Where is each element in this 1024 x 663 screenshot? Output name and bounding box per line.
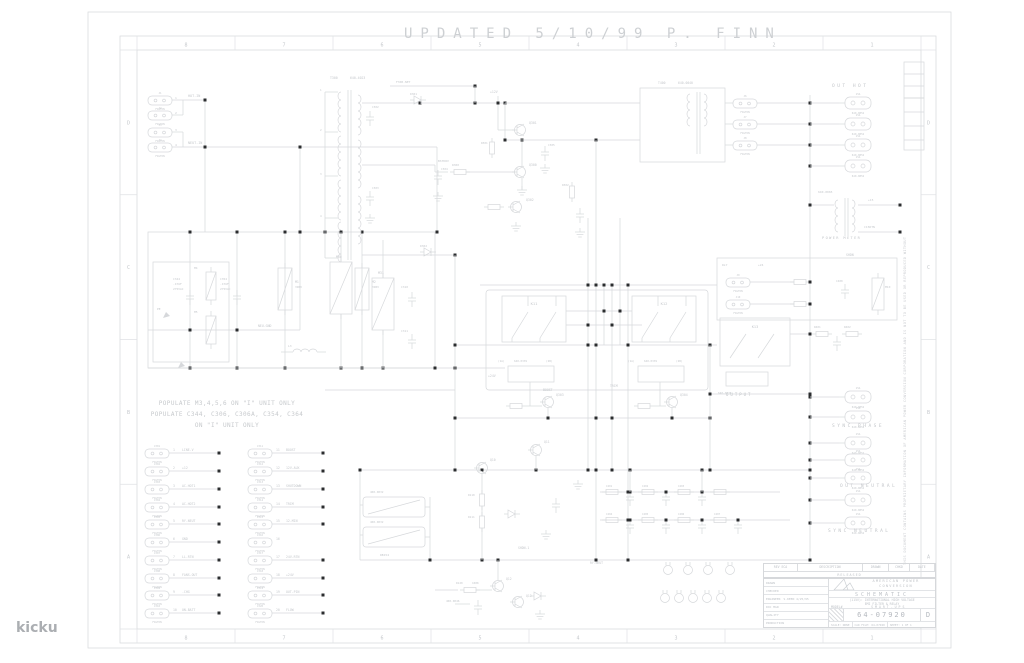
svg-text:+15: +15 [868, 198, 874, 202]
revision-letter: D [920, 609, 935, 621]
svg-text:14: 14 [276, 502, 280, 506]
svg-text:J4: J4 [158, 138, 162, 142]
svg-text:J308: J308 [154, 569, 161, 573]
svg-text:+24V: +24V [286, 573, 294, 577]
svg-text:4: 4 [173, 502, 175, 506]
svg-text:2: 2 [320, 128, 322, 132]
svg-text:4: 4 [175, 143, 177, 147]
svg-text:15A: 15A [856, 113, 861, 117]
svg-text:A: A [927, 555, 930, 561]
svg-text:K11: K11 [531, 301, 539, 306]
svg-text:R401: R401 [814, 325, 821, 329]
svg-text:OUT-PIN: OUT-PIN [286, 590, 300, 594]
svg-text:20: 20 [276, 608, 280, 612]
svg-text:J306: J306 [154, 533, 161, 537]
populate-note-line: POPULATE M3,4,5,6 ON "I" UNIT ONLY [148, 398, 306, 409]
svg-text:16: 16 [276, 537, 280, 541]
svg-text:15A: 15A [856, 449, 861, 453]
svg-text:C: C [927, 265, 930, 271]
svg-text:15A: 15A [856, 386, 861, 390]
svg-text:C310: C310 [401, 285, 408, 289]
label-output: OUTPUT [726, 392, 752, 397]
svg-text:FASTON: FASTON [740, 110, 750, 114]
label-out-hot: OUT HOT [832, 84, 868, 89]
svg-text:400-0032: 400-0032 [370, 520, 384, 524]
svg-text:100K: 100K [472, 581, 479, 585]
revision-table-header: REV ECADESCRIPTIONDRAWNCHKDDATE [764, 564, 935, 572]
svg-text:GND: GND [182, 537, 188, 541]
svg-text:C305: C305 [548, 143, 555, 147]
svg-text:Q300: Q300 [529, 163, 537, 167]
updated-annotation: UPDATED 5/10/99 P. FINN [404, 26, 814, 42]
drawing-description: (115V): INTERNATIONAL HIGH VOLTAGE EMI F… [829, 598, 935, 609]
svg-text:J318: J318 [257, 569, 264, 573]
signoff-row-quality: QUALITY [764, 612, 828, 620]
svg-text:400-0046: 400-0046 [446, 599, 460, 603]
svg-text:15A: 15A [856, 512, 861, 516]
svg-text:8: 8 [184, 636, 187, 642]
svg-text:400-0032: 400-0032 [370, 490, 384, 494]
svg-text:6: 6 [380, 636, 383, 642]
svg-text:390V: 390V [372, 285, 379, 289]
svg-text:SHDN: SHDN [846, 253, 854, 257]
svg-text:R111: R111 [468, 515, 475, 519]
svg-text:J10: J10 [736, 295, 741, 299]
svg-text:3: 3 [175, 128, 177, 132]
svg-text:C304: C304 [441, 167, 448, 171]
svg-text:AC-HOT1: AC-HOT1 [182, 484, 196, 488]
svg-text:J307: J307 [154, 551, 161, 555]
svg-text:Q304: Q304 [680, 393, 688, 397]
company-name: AMERICAN POWER CONVERSION [857, 579, 935, 589]
svg-text:D: D [127, 120, 130, 126]
svg-text:+24: +24 [758, 263, 764, 267]
svg-text:LINE-V: LINE-V [182, 448, 194, 452]
svg-text:640-0040: 640-0040 [678, 81, 693, 85]
signoff-label: ENGINEER [766, 597, 780, 601]
svg-text:T300: T300 [330, 76, 338, 80]
svg-text:C: C [127, 265, 130, 271]
svg-text:K12: K12 [661, 301, 668, 306]
svg-text:A: A [127, 555, 130, 561]
svg-text:3: 3 [320, 172, 322, 176]
svg-text:.47UF: .47UF [173, 282, 182, 286]
svg-text:J317: J317 [257, 551, 264, 555]
revision-header-0: REV ECA [764, 564, 798, 571]
populate-note: POPULATE M3,4,5,6 ON "I" UNIT ONLY POPUL… [148, 398, 306, 431]
svg-text:2: 2 [772, 43, 775, 49]
svg-text:12-MIN: 12-MIN [286, 519, 298, 523]
svg-text:+12V: +12V [490, 90, 498, 94]
svg-text:1: 1 [870, 636, 873, 642]
svg-text:FANS-OUT: FANS-OUT [182, 573, 197, 577]
svg-text:-CHG: -CHG [182, 590, 190, 594]
signoff-row-doc-mgr: DOC MGR [764, 604, 828, 612]
svg-text:Q10: Q10 [490, 458, 496, 462]
svg-text:BOOST: BOOST [543, 388, 553, 392]
svg-text:C311: C311 [401, 329, 408, 333]
svg-text:SHDN-1: SHDN-1 [518, 546, 529, 550]
svg-text:15A: 15A [856, 134, 861, 138]
svg-text:640-0852: 640-0852 [852, 174, 865, 178]
svg-text:J319: J319 [257, 586, 264, 590]
svg-text:2: 2 [175, 111, 177, 115]
svg-text:J6: J6 [743, 94, 747, 98]
svg-text:8: 8 [184, 43, 187, 49]
svg-text:RB154: RB154 [380, 553, 389, 557]
svg-text:640-0065: 640-0065 [818, 190, 833, 194]
revision-header-3: CHKD [889, 564, 909, 571]
svg-text:C404: C404 [606, 512, 613, 516]
svg-text:640-0339: 640-0339 [644, 359, 657, 363]
svg-text:BSTDRV: BSTDRV [438, 159, 449, 163]
svg-text:J320: J320 [257, 604, 264, 608]
svg-text:C401: C401 [606, 484, 613, 488]
svg-text:SHUTDOWN: SHUTDOWN [286, 484, 301, 488]
signoff-row-production: PRODUCTION [764, 620, 828, 627]
svg-text:PE: PE [157, 307, 161, 311]
svg-text:3: 3 [674, 43, 677, 49]
svg-text:FASTON: FASTON [740, 152, 750, 156]
svg-text:F300-NET: F300-NET [396, 80, 411, 84]
svg-text:J2: J2 [158, 106, 162, 110]
svg-text:2: 2 [173, 466, 175, 470]
svg-text:R301: R301 [481, 141, 488, 145]
signoff-label: QUALITY [766, 613, 779, 617]
svg-text:R402: R402 [844, 325, 851, 329]
svg-text:10: 10 [173, 608, 177, 612]
svg-text:15A: 15A [856, 155, 861, 159]
svg-text:D301: D301 [410, 92, 417, 96]
svg-text:3: 3 [674, 636, 677, 642]
signoff-value: S.KEEN 4/25/95 [783, 597, 808, 601]
svg-text:17: 17 [276, 555, 280, 559]
svg-text:4: 4 [576, 636, 579, 642]
label-out-neutral: OUT NEUTRAL [840, 484, 897, 489]
svg-text:7: 7 [282, 43, 285, 49]
svg-text:C407: C407 [714, 512, 721, 516]
svg-text:C402: C402 [642, 484, 649, 488]
svg-text:M10: M10 [885, 285, 891, 289]
svg-text:(1A): (1A) [628, 359, 635, 363]
label-sync-phase: SYNC PHASE [832, 424, 884, 429]
svg-text:4: 4 [576, 43, 579, 49]
svg-text:LL-RTN: LL-RTN [182, 555, 194, 559]
svg-text:.47UF: .47UF [220, 282, 229, 286]
svg-text:C403: C403 [678, 484, 685, 488]
svg-text:Q11: Q11 [544, 440, 550, 444]
svg-text:J302: J302 [154, 462, 161, 466]
svg-text:12V-AUX: 12V-AUX [286, 466, 300, 470]
svg-text:J8: J8 [743, 136, 747, 140]
svg-text:J314: J314 [257, 498, 264, 502]
svg-text:15A: 15A [856, 92, 861, 96]
svg-text:AC-HOT2: AC-HOT2 [182, 502, 196, 506]
svg-text:R300: R300 [452, 163, 459, 167]
signoff-label: CHECKED [766, 589, 779, 593]
svg-text:(1A): (1A) [498, 359, 505, 363]
svg-text:ON-BATT: ON-BATT [182, 608, 196, 612]
svg-text:R110: R110 [468, 493, 475, 497]
svg-text:11: 11 [276, 448, 280, 452]
svg-text:R302: R302 [562, 183, 569, 187]
svg-text:+12: +12 [182, 466, 188, 470]
doc-type: SCHEMATIC [829, 591, 935, 599]
revision-header-4: DATE [910, 564, 935, 571]
svg-text:6: 6 [173, 537, 175, 541]
svg-text:5: 5 [173, 519, 175, 523]
svg-text:K13: K13 [752, 325, 759, 329]
svg-text:3: 3 [173, 484, 175, 488]
svg-text:TRIM: TRIM [286, 502, 294, 506]
populate-note-line: ON "I" UNIT ONLY [148, 420, 306, 431]
svg-text:M5: M5 [194, 310, 198, 314]
svg-text:7: 7 [173, 555, 175, 559]
svg-text:Q302: Q302 [526, 198, 534, 202]
svg-text:C303: C303 [372, 186, 379, 190]
apc-logo [831, 579, 857, 591]
svg-text:FASTON: FASTON [733, 311, 743, 315]
svg-text:C406: C406 [678, 512, 685, 516]
svg-text:390V: 390V [295, 285, 302, 289]
drawing-number: 64-07920 [844, 609, 920, 621]
svg-text:C400: C400 [836, 279, 843, 283]
svg-text:FASTON: FASTON [740, 131, 750, 135]
svg-text:(2B): (2B) [546, 359, 553, 363]
svg-text:6: 6 [380, 43, 383, 49]
svg-text:1: 1 [173, 448, 175, 452]
svg-text:J305: J305 [154, 515, 161, 519]
signoff-column: DRAWNCHECKEDENGINEERS.KEEN 4/25/95DOC MG… [764, 579, 829, 627]
company-line2: CONVERSION [857, 584, 935, 589]
svg-text:B: B [127, 410, 130, 416]
svg-text:J315: J315 [257, 515, 264, 519]
svg-text:FASTON: FASTON [733, 289, 743, 293]
svg-text:RY-NEUT: RY-NEUT [182, 519, 196, 523]
svg-text:J313: J313 [257, 480, 264, 484]
svg-text:J311: J311 [257, 444, 264, 448]
svg-text:D: D [927, 120, 930, 126]
title-block: DRAWNCHECKEDENGINEERS.KEEN 4/25/95DOC MG… [763, 578, 936, 628]
svg-text:8: 8 [173, 573, 175, 577]
svg-text:+24V: +24V [488, 374, 496, 378]
svg-text:2: 2 [772, 636, 775, 642]
svg-text:FASTON: FASTON [255, 620, 265, 624]
svg-text:Q301: Q301 [529, 121, 537, 125]
svg-text:J316: J316 [257, 533, 264, 537]
svg-text:FASTON: FASTON [152, 620, 162, 624]
svg-text:Q303: Q303 [556, 393, 564, 397]
svg-text:C15RTN: C15RTN [864, 225, 875, 229]
signoff-label: PRODUCTION [766, 621, 784, 625]
svg-text:1: 1 [175, 96, 177, 100]
cad-file-text: CAD FILE: 64-07920 [853, 622, 888, 627]
svg-text:4: 4 [320, 214, 322, 218]
svg-text:C344: C344 [173, 277, 180, 281]
svg-text:J3: J3 [158, 123, 162, 127]
svg-text:Q12: Q12 [506, 577, 512, 581]
svg-text:15A: 15A [856, 406, 861, 410]
scale-text: SCALE: NONE [829, 622, 853, 627]
svg-text:NEUT-IN: NEUT-IN [188, 141, 202, 145]
signoff-row-engineer: ENGINEERS.KEEN 4/25/95 [764, 595, 828, 603]
svg-text:M4: M4 [194, 266, 198, 270]
revision-table: REV ECADESCRIPTIONDRAWNCHKDDATE RELEASED [763, 563, 936, 578]
signoff-label: DRAWN [766, 581, 775, 585]
svg-text:BOOST: BOOST [286, 448, 296, 452]
svg-text:NEU-GND: NEU-GND [258, 324, 272, 328]
svg-text:R120: R120 [456, 581, 463, 585]
svg-text:J304: J304 [154, 498, 161, 502]
svg-text:5: 5 [478, 43, 481, 49]
svg-text:640-0852: 640-0852 [852, 508, 865, 512]
svg-text:C354: C354 [220, 277, 227, 281]
watermark: kicku [16, 620, 58, 636]
svg-text:J309: J309 [154, 586, 161, 590]
svg-text:19: 19 [276, 590, 280, 594]
svg-text:(2B): (2B) [676, 359, 683, 363]
svg-text:275VAC: 275VAC [173, 287, 184, 291]
svg-text:1: 1 [870, 43, 873, 49]
svg-text:M2: M2 [372, 280, 376, 284]
svg-text:640-0339: 640-0339 [514, 359, 527, 363]
signoff-row-drawn: DRAWN [764, 579, 828, 587]
label-sync-neutral: SYNC NEUTRAL [828, 529, 891, 534]
size-flag [829, 609, 844, 621]
svg-text:5: 5 [478, 636, 481, 642]
svg-text:L3: L3 [288, 344, 292, 348]
svg-text:15: 15 [276, 519, 280, 523]
revision-header-1: DESCRIPTION [798, 564, 863, 571]
svg-text:C405: C405 [642, 512, 649, 516]
svg-text:FASTON: FASTON [155, 154, 165, 158]
schematic-sheet: FASTONJ1FASTONJ2FASTONJ3FASTONJ41234HOT-… [0, 0, 1024, 663]
svg-text:T400: T400 [658, 81, 666, 85]
revision-header-2: DRAWN [863, 564, 889, 571]
svg-text:J1: J1 [158, 91, 162, 95]
svg-text:D302: D302 [420, 244, 427, 248]
svg-text:J9: J9 [736, 273, 740, 277]
signoff-row-checked: CHECKED [764, 587, 828, 595]
sheet-text: SHEET: 1 OF 1 [888, 622, 914, 627]
svg-text:J310: J310 [154, 604, 161, 608]
label-power-meter: POWER METER [822, 236, 861, 240]
svg-text:M1: M1 [295, 280, 299, 284]
svg-text:FLOW: FLOW [286, 608, 294, 612]
svg-text:12: 12 [276, 466, 280, 470]
svg-text:9: 9 [173, 590, 175, 594]
populate-note-line: POPULATE C344, C306, C306A, C354, C364 [148, 409, 306, 420]
svg-text:1: 1 [320, 88, 322, 92]
svg-text:640-4023: 640-4023 [350, 76, 365, 80]
signoff-label: DOC MGR [766, 605, 779, 609]
svg-text:RY-NEUT: RY-NEUT [590, 561, 603, 565]
svg-text:15A: 15A [856, 432, 861, 436]
svg-text:15A: 15A [856, 489, 861, 493]
svg-text:HOT-IN: HOT-IN [188, 94, 200, 98]
svg-text:B: B [927, 410, 930, 416]
svg-text:J312: J312 [257, 462, 264, 466]
svg-text:J7: J7 [743, 115, 747, 119]
svg-text:TRIM: TRIM [610, 384, 618, 388]
svg-text:RLY: RLY [722, 263, 728, 267]
svg-text:J301: J301 [154, 444, 161, 448]
svg-text:15A: 15A [856, 467, 861, 471]
svg-text:13: 13 [276, 484, 280, 488]
svg-text:J303: J303 [154, 480, 161, 484]
svg-text:18: 18 [276, 573, 280, 577]
svg-text:C302: C302 [372, 105, 379, 109]
svg-text:24V-RTN: 24V-RTN [286, 555, 300, 559]
proprietary-note: THIS DOCUMENT CONTAINS PROPRIETARY INFOR… [903, 235, 912, 565]
svg-text:7: 7 [282, 636, 285, 642]
